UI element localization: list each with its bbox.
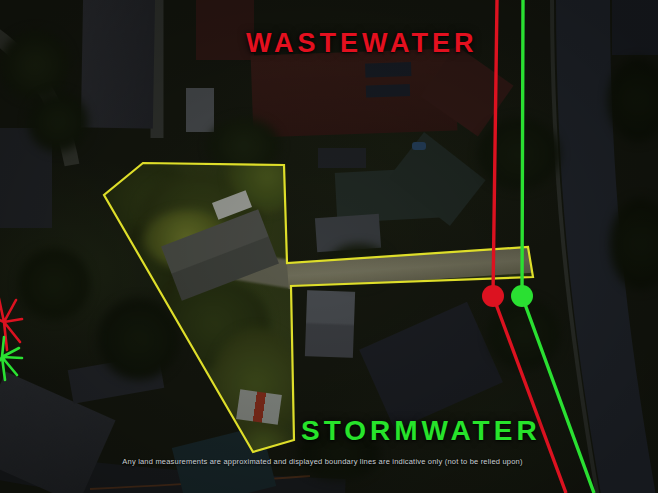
stormwater-junction-icon — [0, 337, 22, 380]
plan-canvas: WASTEWATER STORMWATER Any land measureme… — [0, 0, 658, 493]
disclaimer-text: Any land measurements are approximated a… — [0, 457, 645, 466]
stormwater-node — [511, 285, 533, 307]
wastewater-label: WASTEWATER — [246, 28, 478, 59]
wastewater-node — [482, 285, 504, 307]
stormwater-label: STORMWATER — [301, 415, 541, 447]
property-boundary — [104, 163, 533, 452]
